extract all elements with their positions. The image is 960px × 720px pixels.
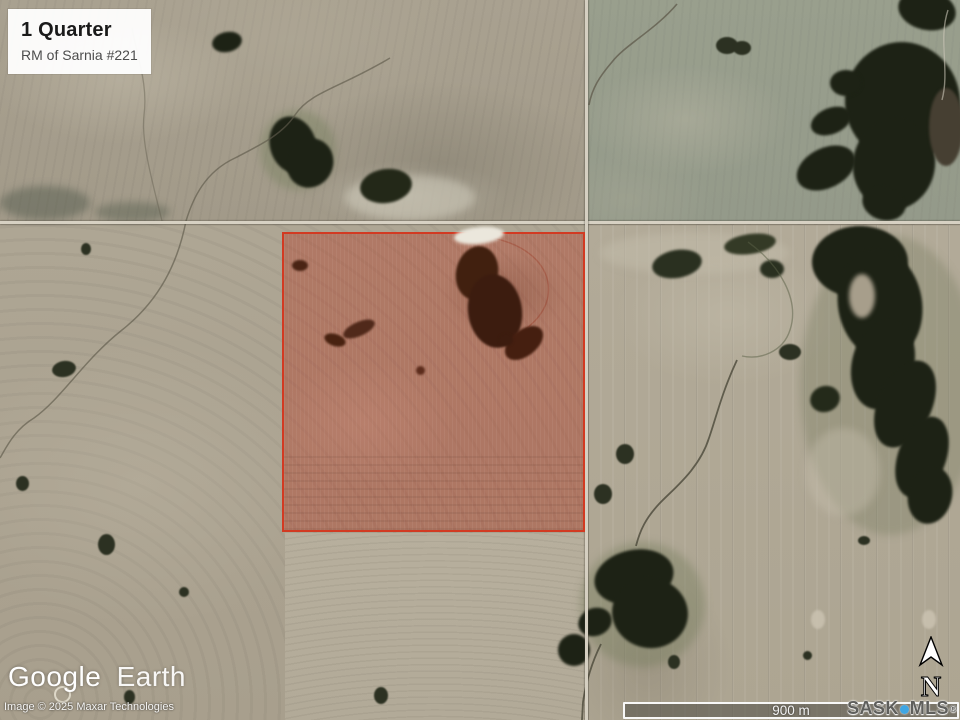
earth-wordmark: Earth	[117, 661, 186, 692]
google-earth-map-canvas: 1 Quarter RM of Sarnia #221 Google Earth…	[0, 0, 960, 720]
road-north-south	[585, 0, 588, 720]
parcel-contours	[284, 455, 583, 530]
creek-path	[942, 10, 948, 100]
slough-blob	[416, 366, 425, 375]
creek-path	[636, 360, 737, 546]
google-wordmark: Google	[8, 661, 101, 692]
google-earth-watermark: Google Earth	[8, 661, 186, 693]
highlighted-parcel-boundary	[282, 232, 585, 532]
registered-mark: ®	[950, 704, 957, 714]
creek-path	[589, 4, 677, 105]
mls-suffix: MLS	[910, 698, 949, 719]
listing-title-card: 1 Quarter RM of Sarnia #221	[8, 9, 151, 74]
slough-blob	[292, 260, 308, 271]
north-arrow-icon: N	[906, 636, 956, 702]
mls-prefix: SASK	[847, 698, 899, 719]
sask-mls-logo: SASK MLS ®	[847, 698, 957, 719]
scale-label: 900 m	[772, 703, 810, 718]
north-arrow-glyph	[920, 637, 942, 665]
mls-blue-dot-icon	[900, 705, 909, 714]
municipality-subtitle: RM of Sarnia #221	[21, 47, 138, 63]
road-east-west	[0, 221, 960, 224]
north-compass: N	[906, 636, 956, 702]
imagery-attribution: Image © 2025 Maxar Technologies	[4, 701, 174, 713]
creek-path	[742, 242, 793, 357]
page-title: 1 Quarter	[21, 19, 138, 42]
slough-blob	[499, 334, 513, 346]
